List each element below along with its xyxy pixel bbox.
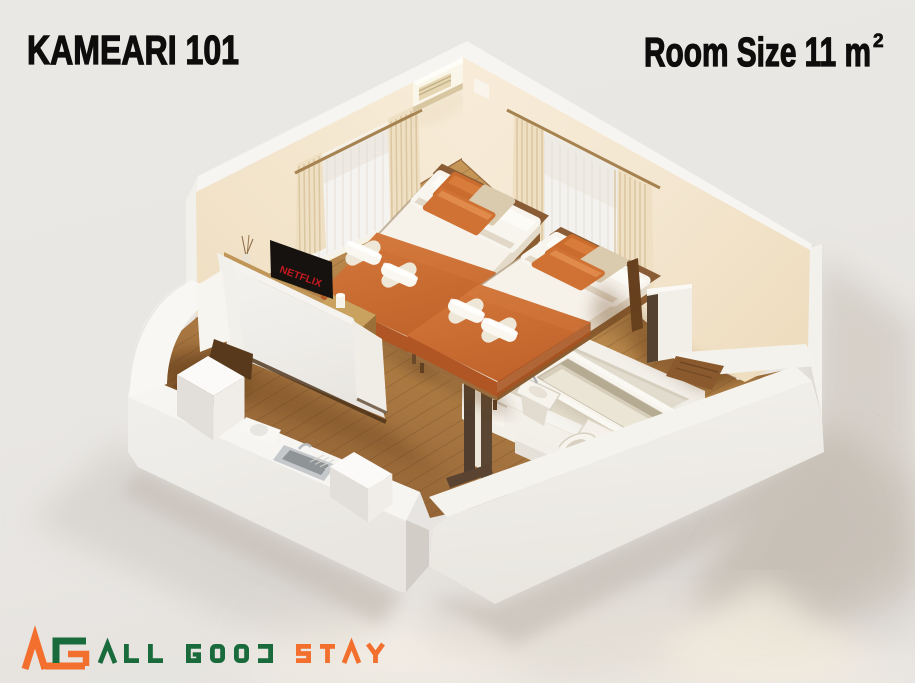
svg-text:Room Size 11 m: Room Size 11 m bbox=[644, 29, 871, 75]
svg-text:KAMEARI 101: KAMEARI 101 bbox=[27, 27, 239, 73]
svg-text:2: 2 bbox=[873, 31, 884, 52]
